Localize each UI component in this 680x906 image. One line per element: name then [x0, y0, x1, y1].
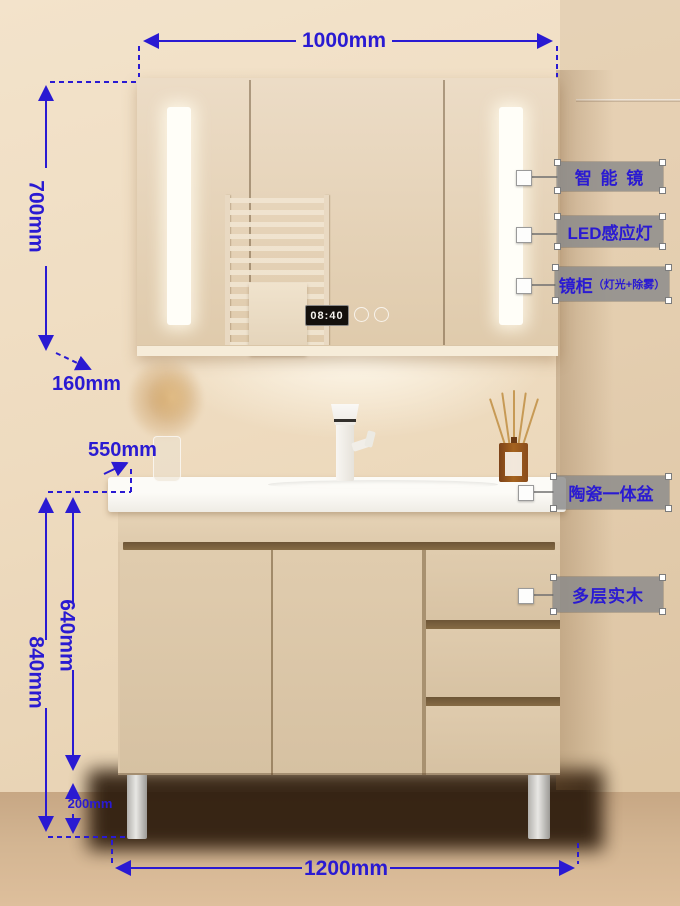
dim-counter-depth: 550mm — [88, 440, 156, 460]
dim-vanity-width: 1200mm — [300, 858, 392, 879]
callout-multilayer-wood-label: 多层实木 — [572, 582, 644, 607]
callout-mirror-cabinet-label: 镜柜 — [559, 272, 593, 297]
callout-marker-multilayer-wood — [518, 588, 534, 604]
callout-smart-mirror: 智 能 镜 — [557, 162, 663, 191]
dim-mirror-depth: 160mm — [52, 374, 128, 394]
callout-marker-smart-mirror — [516, 170, 532, 186]
callout-mirror-cabinet-sub: （灯光+除雾） — [593, 276, 665, 292]
product-dimension-diagram: 08:40 — [0, 0, 680, 906]
callout-ceramic-basin-label: 陶瓷一体盆 — [569, 480, 654, 505]
dim-mirror-width: 1000mm — [296, 30, 392, 51]
callout-marker-led-light — [516, 227, 532, 243]
dim-leg-height: 200mm — [60, 797, 120, 810]
callout-led-light-label: LED感应灯 — [568, 219, 653, 244]
callout-smart-mirror-label: 智 能 镜 — [575, 164, 645, 189]
dim-mirror-height: 700mm — [26, 172, 47, 262]
callout-multilayer-wood: 多层实木 — [553, 577, 663, 612]
callout-marker-ceramic-basin — [518, 485, 534, 501]
callout-marker-mirror-cabinet — [516, 278, 532, 294]
callout-led-light: LED感应灯 — [557, 216, 663, 247]
callout-ceramic-basin: 陶瓷一体盆 — [553, 476, 669, 509]
callout-mirror-cabinet: 镜柜（灯光+除雾） — [555, 267, 669, 301]
dim-body-height: 640mm — [57, 591, 78, 681]
dim-total-height: 840mm — [26, 628, 47, 718]
